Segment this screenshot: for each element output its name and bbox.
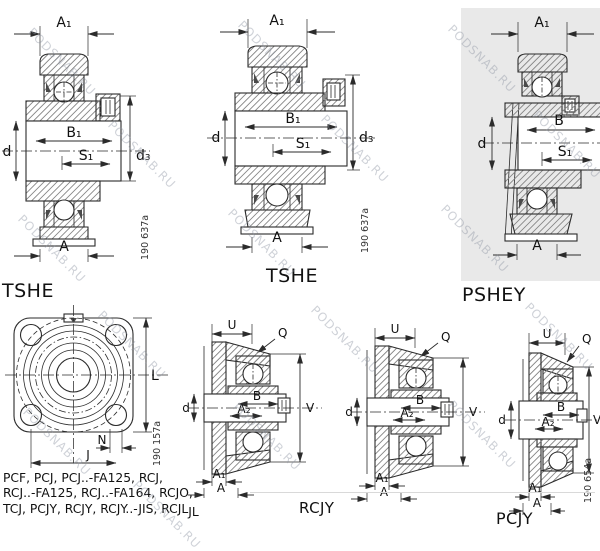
series-line-2: RCJ..-FA125, RCJ..-FA164, RCJO, xyxy=(3,486,199,501)
series-line-3: TCJ, PCJY, RCJY, RCJY..-JIS, RCJLJL xyxy=(3,502,199,517)
caption-pshey: PSHEY xyxy=(462,284,526,306)
caption-pcjy: PCJY xyxy=(496,509,533,528)
caption-rcjy: RCJY xyxy=(299,499,334,517)
catalog-page: { "watermark": "PODSNAB.RU", "captions":… xyxy=(0,0,600,527)
text-layer: TSHE TSHE PSHEY RCJY PCJY PCF, PCJ, PCJ.… xyxy=(0,0,600,527)
series-line-3-suffix: JL xyxy=(188,505,198,519)
series-line-1: PCF, PCJ, PCJ..-FA125, RCJ, xyxy=(3,471,199,486)
caption-tshe-2: TSHE xyxy=(266,265,318,287)
caption-tshe-1: TSHE xyxy=(2,280,54,302)
series-list: PCF, PCJ, PCJ..-FA125, RCJ, RCJ..-FA125,… xyxy=(3,471,199,517)
